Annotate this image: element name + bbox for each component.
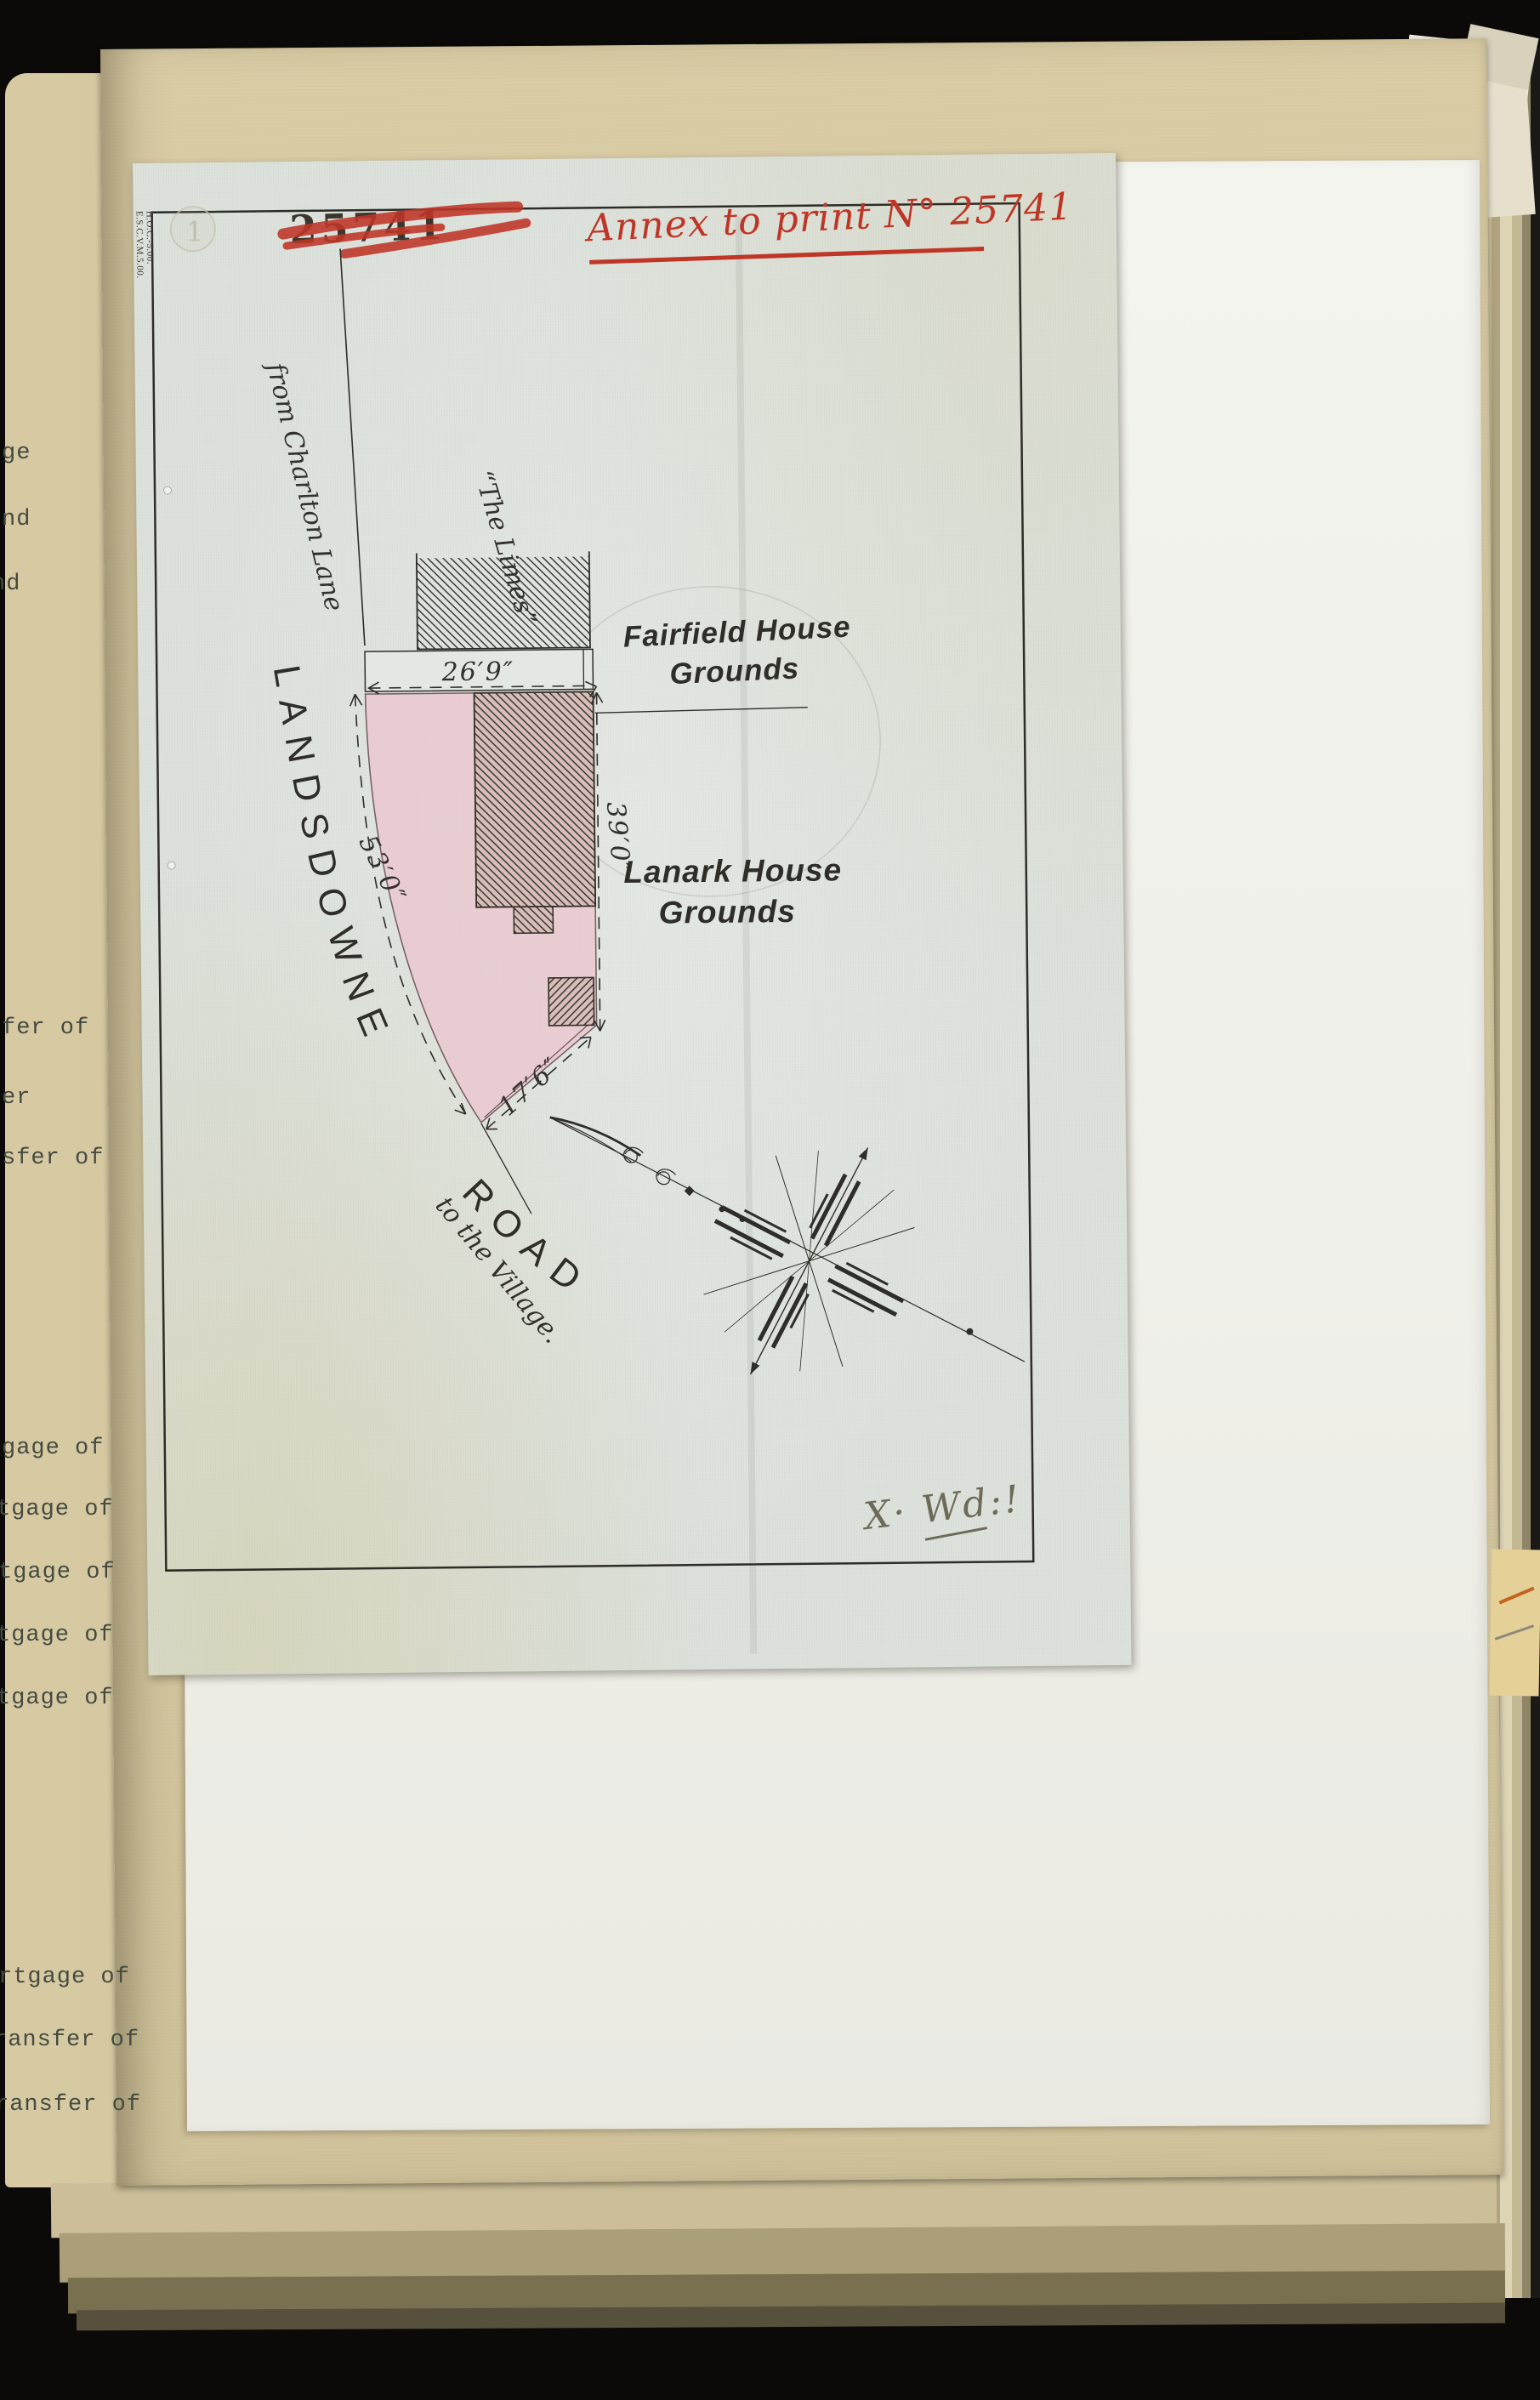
label-fairfield-line2: Grounds (669, 651, 800, 691)
tab-mark (1499, 1587, 1535, 1605)
pin-hole (168, 862, 175, 869)
label-lanark-line1: Lanark House (623, 852, 842, 890)
annexed-plan-document: 1 H.O.C.-5.00. E.S.C.V.M.5.00. 25741 Ann… (133, 153, 1132, 1675)
label-fairfield-grounds: Fairfield House Grounds (622, 611, 853, 693)
page-fore-edge (1500, 48, 1512, 2298)
blind-stamp-numeral: 1 (186, 215, 204, 247)
page-fore-edge (1522, 48, 1531, 2298)
print-code-2: E.S.C.V.M.5.00. (134, 211, 145, 279)
label-lanark-grounds: Lanark House Grounds (623, 852, 843, 930)
margin-fragment: fer of (2, 1017, 89, 1040)
outbuilding (548, 977, 594, 1026)
protruding-document-tab (1490, 1550, 1540, 1697)
margin-fragment: ransfer of (0, 2029, 139, 2052)
margin-fragment: nd (0, 573, 20, 596)
measurement-north: 26′9″ (440, 657, 514, 687)
pin-hole (163, 486, 171, 494)
tab-mark (1495, 1624, 1534, 1640)
margin-fragment: rtgage of (0, 1966, 130, 1989)
print-code-1: H.O.C.-5.00. (145, 211, 156, 264)
label-fairfield-line1: Fairfield House (622, 611, 851, 654)
north-star-burst (660, 1100, 958, 1421)
margin-fragment: sfer of (2, 1147, 104, 1170)
plan-drawing: 1 H.O.C.-5.00. E.S.C.V.M.5.00. 25741 Ann… (133, 153, 1132, 1675)
margin-fragment: tgage of (0, 1561, 116, 1584)
margin-fragment: tgage of (0, 1624, 114, 1647)
margin-fragment: ransfer of (0, 2094, 141, 2117)
page-fore-edge (1531, 48, 1540, 2298)
red-underline (589, 249, 984, 263)
page-fore-edge (1512, 48, 1522, 2298)
label-from-charlton-lane: from Charlton Lane (260, 358, 349, 614)
margin-fragment: tgage of (0, 1687, 114, 1710)
plot-building (475, 691, 596, 907)
blind-stamp: 1 (171, 207, 216, 252)
examiner-mark: X· Wd:! (859, 1477, 1024, 1538)
margin-fragment: nd (2, 509, 31, 532)
label-lanark-line2: Grounds (658, 894, 796, 930)
red-annotation: Annex to print N° 25741 (582, 185, 1074, 250)
margin-fragment: ge (2, 442, 31, 465)
grounds-boundary-line (595, 708, 808, 714)
margin-fragment: er (2, 1087, 31, 1110)
plot-building-step (514, 907, 553, 933)
paper-crease (739, 217, 754, 1654)
margin-fragment: tgage of (0, 1499, 114, 1521)
margin-fragment: gage of (2, 1437, 104, 1460)
